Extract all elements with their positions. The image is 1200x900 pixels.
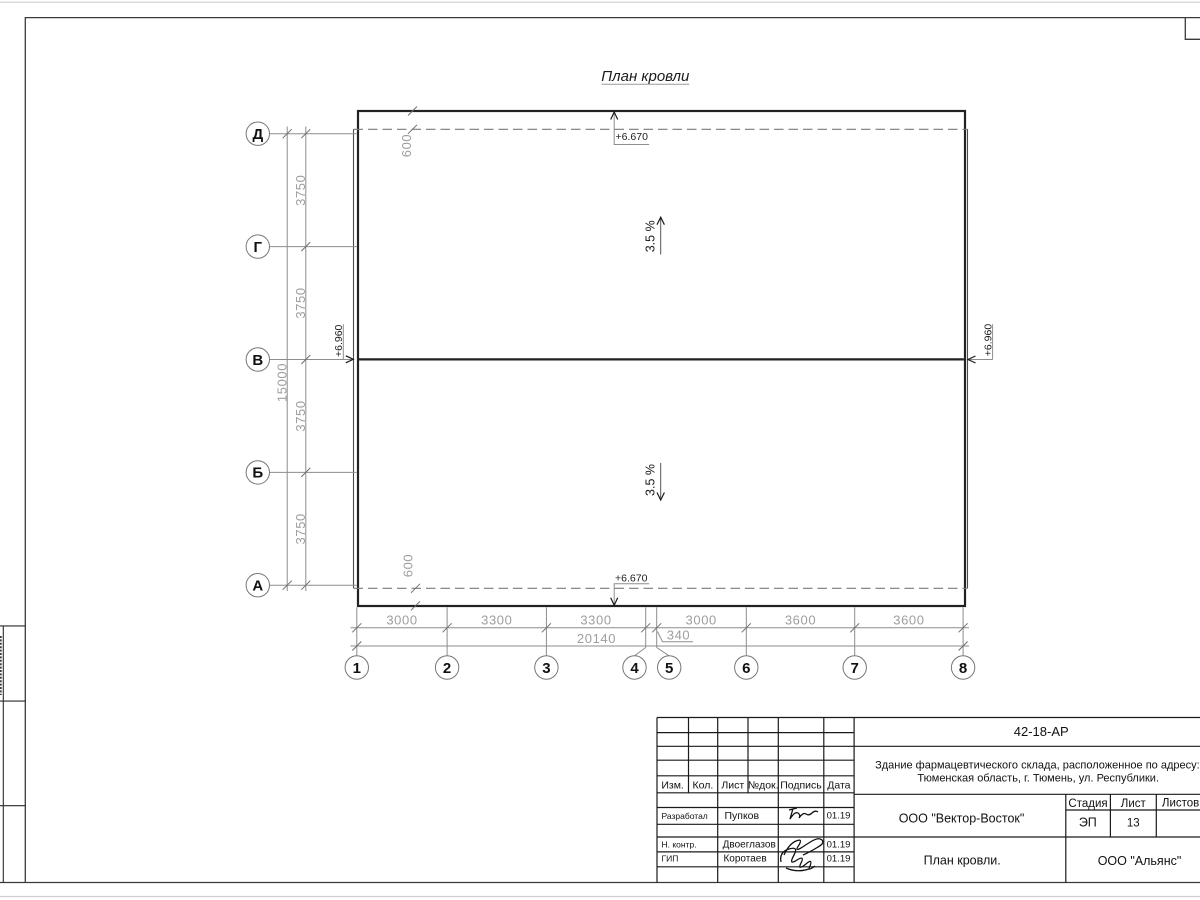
svg-text:3600: 3600 bbox=[785, 613, 816, 628]
svg-text:3.5 %: 3.5 % bbox=[644, 220, 658, 252]
svg-text:600: 600 bbox=[399, 134, 414, 158]
svg-text:+6.670: +6.670 bbox=[616, 131, 649, 143]
svg-text:8: 8 bbox=[959, 660, 967, 677]
svg-text:3000: 3000 bbox=[386, 613, 417, 628]
svg-text:Г: Г bbox=[254, 239, 263, 256]
svg-text:Пупков: Пупков bbox=[724, 810, 759, 822]
svg-text:План кровли: План кровли bbox=[601, 68, 690, 85]
svg-text:5: 5 bbox=[665, 660, 673, 677]
svg-text:01.19: 01.19 bbox=[827, 854, 851, 865]
svg-text:6: 6 bbox=[742, 660, 750, 677]
svg-text:3600: 3600 bbox=[893, 613, 924, 628]
svg-text:Н. контр.: Н. контр. bbox=[662, 840, 697, 850]
svg-text:Лист: Лист bbox=[1121, 798, 1147, 810]
svg-text:План кровли.: План кровли. bbox=[924, 854, 1001, 868]
svg-text:ЭП: ЭП bbox=[1079, 816, 1097, 830]
svg-text:Лист: Лист bbox=[721, 779, 744, 791]
svg-text:+6.670: +6.670 bbox=[615, 573, 648, 585]
svg-text:3750: 3750 bbox=[293, 287, 308, 318]
svg-text:3000: 3000 bbox=[686, 613, 717, 628]
svg-text:Подпись: Подпись bbox=[780, 779, 822, 791]
svg-text:ООО "Вектор-Восток": ООО "Вектор-Восток" bbox=[899, 811, 1025, 825]
svg-text:ГИП: ГИП bbox=[662, 854, 679, 864]
svg-text:№док.: №док. bbox=[748, 779, 779, 791]
svg-text:А: А bbox=[252, 578, 263, 595]
svg-text:Изм.: Изм. bbox=[661, 779, 684, 791]
svg-text:3300: 3300 bbox=[580, 613, 611, 628]
svg-text:01.19: 01.19 bbox=[827, 840, 851, 851]
svg-text:Листов: Листов bbox=[1162, 798, 1199, 810]
svg-text:+6.960: +6.960 bbox=[333, 324, 345, 357]
svg-text:3750: 3750 bbox=[293, 175, 308, 206]
svg-text:42-18-АР: 42-18-АР bbox=[1014, 724, 1069, 739]
svg-text:Коротаев: Коротаев bbox=[723, 854, 766, 865]
svg-text:1: 1 bbox=[353, 660, 361, 677]
svg-text:Б: Б bbox=[252, 465, 263, 482]
svg-text:Разработал: Разработал bbox=[662, 811, 708, 821]
svg-text:Двоеглазов: Двоеглазов bbox=[723, 840, 776, 851]
svg-text:3750: 3750 bbox=[293, 400, 308, 431]
svg-text:20140: 20140 bbox=[577, 631, 616, 646]
svg-text:Здание фармацевтического склад: Здание фармацевтического склада, располо… bbox=[875, 759, 1200, 771]
svg-text:Кол.: Кол. bbox=[693, 779, 714, 791]
svg-text:+6.960: +6.960 bbox=[982, 324, 994, 357]
svg-text:3: 3 bbox=[542, 660, 550, 677]
svg-text:3750: 3750 bbox=[293, 513, 308, 544]
svg-text:7: 7 bbox=[851, 660, 859, 677]
svg-text:Тюменская область, г. Тюмень,: Тюменская область, г. Тюмень, ул. Респуб… bbox=[917, 772, 1159, 784]
svg-text:Стадия: Стадия bbox=[1068, 798, 1107, 810]
svg-text:340: 340 bbox=[667, 628, 691, 643]
svg-text:600: 600 bbox=[401, 554, 416, 578]
svg-text:4: 4 bbox=[630, 660, 639, 677]
svg-text:13: 13 bbox=[1127, 817, 1140, 829]
svg-text:3.5 %: 3.5 % bbox=[644, 464, 658, 496]
svg-text:Д: Д bbox=[252, 126, 263, 143]
svg-text:15000: 15000 bbox=[275, 363, 290, 402]
svg-text:01.19: 01.19 bbox=[827, 811, 851, 822]
svg-text:Дата: Дата bbox=[827, 779, 850, 791]
svg-text:ООО "Альянс": ООО "Альянс" bbox=[1098, 854, 1182, 868]
svg-text:В: В bbox=[252, 352, 263, 369]
svg-text:2: 2 bbox=[443, 660, 451, 677]
svg-text:3300: 3300 bbox=[481, 613, 512, 628]
